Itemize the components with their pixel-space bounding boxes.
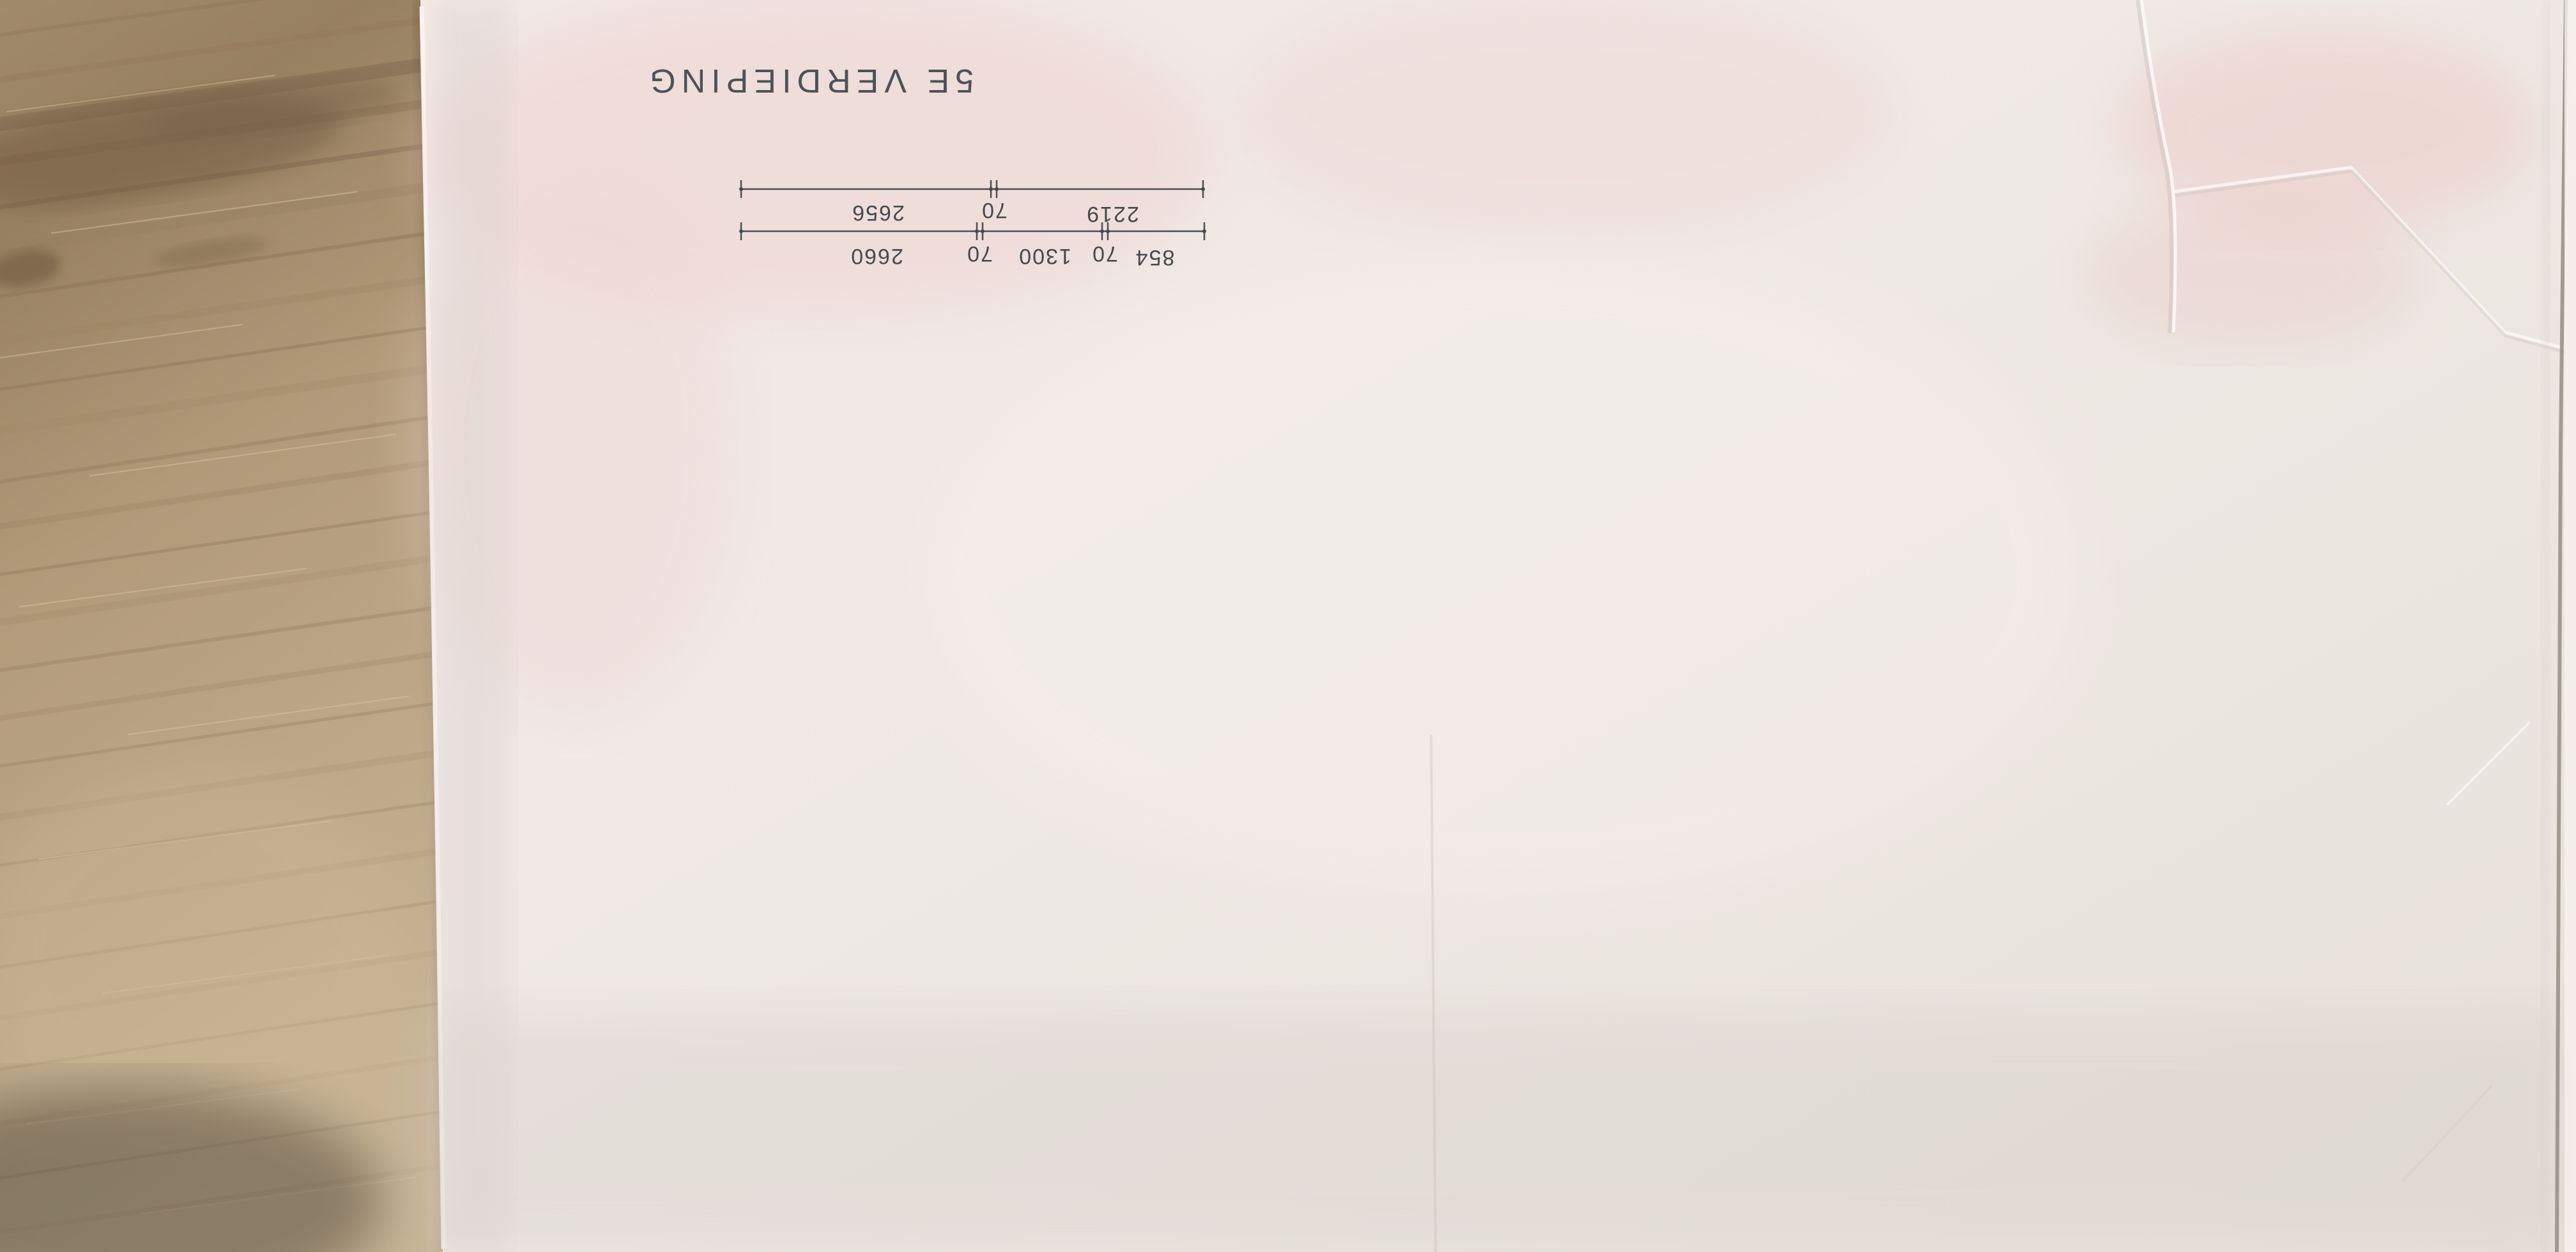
svg-text:2219: 2219	[1085, 202, 1139, 226]
svg-text:1300: 1300	[1018, 244, 1071, 268]
svg-text:5E VERDIEPING: 5E VERDIEPING	[644, 62, 974, 99]
svg-text:2656: 2656	[851, 201, 905, 225]
svg-text:70: 70	[1091, 241, 1118, 266]
svg-text:854: 854	[1135, 245, 1175, 270]
svg-text:2660: 2660	[850, 244, 903, 268]
svg-text:70: 70	[966, 241, 993, 266]
svg-text:70: 70	[981, 198, 1008, 222]
